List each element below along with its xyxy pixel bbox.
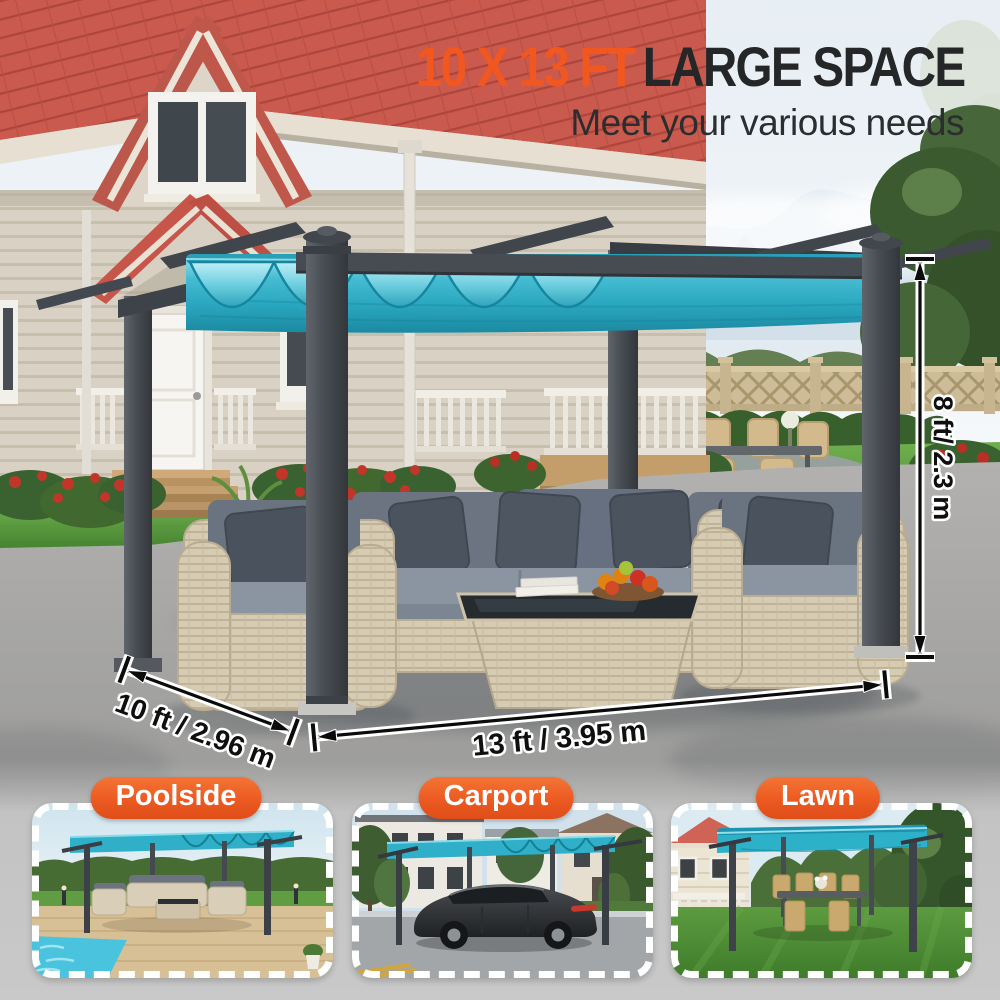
thumbnail-lawn — [671, 803, 972, 978]
thumbnail-carport — [352, 803, 653, 978]
armchair-left — [178, 500, 396, 710]
headline-block: 10 X 13 FTLARGE SPACE Meet your various … — [319, 38, 964, 144]
carport-mini-scene — [352, 803, 653, 978]
wicker-furniture-set — [155, 489, 920, 736]
mini-furniture — [92, 875, 252, 933]
lawn-mini-scene — [671, 803, 972, 978]
product-hero-image: 8 ft/ 2.3 m 10 ft / 2.96 m 13 ft / 3.95 … — [0, 0, 1000, 1000]
height-dimension-label: 8 ft/ 2.3 m — [928, 396, 958, 521]
scene-label-poolside: Poolside — [91, 777, 262, 819]
scene-label-lawn: Lawn — [756, 777, 880, 819]
pergola-post-front-right — [862, 244, 900, 654]
headline: 10 X 13 FTLARGE SPACE — [415, 38, 964, 95]
poolside-mini-scene — [32, 803, 333, 978]
headline-size-text: 10 X 13 FT — [415, 35, 633, 98]
headline-subtitle: Meet your various needs — [319, 102, 964, 144]
pergola-post-front-left — [306, 238, 348, 712]
edge-window — [0, 300, 18, 404]
pergola-post-rear-left — [124, 296, 152, 672]
headline-rest-text: LARGE SPACE — [642, 35, 964, 98]
thumbnail-poolside — [32, 803, 333, 978]
scene-label-carport: Carport — [419, 777, 574, 819]
